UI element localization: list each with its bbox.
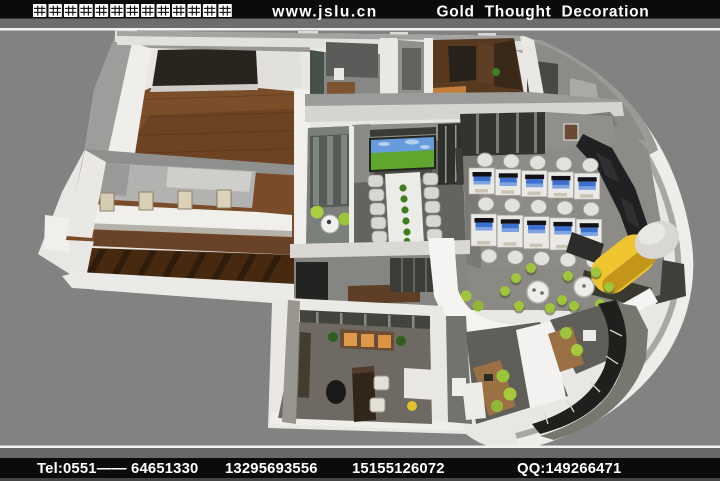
svg-text:15155126072: 15155126072: [352, 461, 445, 477]
svg-text:Tel:0551—— 64651330: Tel:0551—— 64651330: [37, 461, 198, 477]
svg-text:www.jslu.cn: www.jslu.cn: [271, 4, 378, 21]
svg-text:QQ:149266471: QQ:149266471: [517, 461, 621, 477]
svg-text:Gold Thought Decoration: Gold Thought Decoration: [437, 4, 650, 21]
svg-text:13295693556: 13295693556: [225, 461, 318, 477]
